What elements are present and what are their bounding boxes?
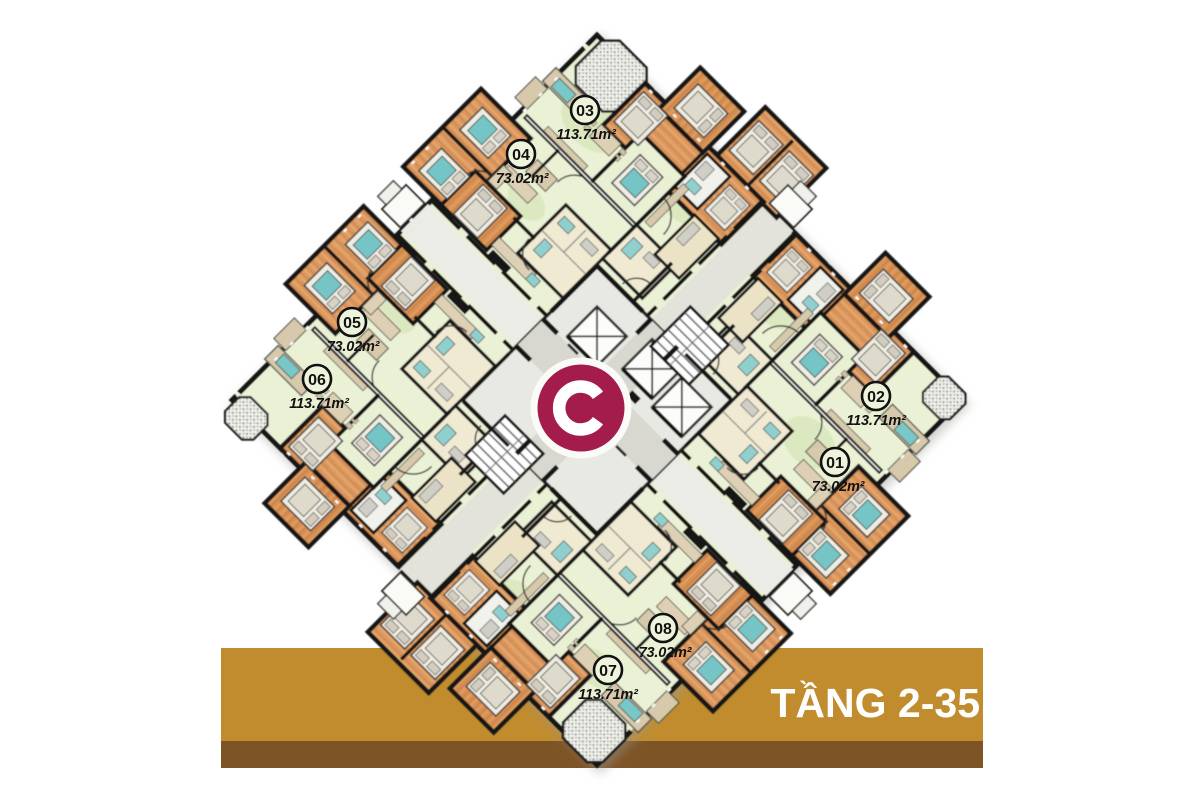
svg-text:03: 03 [576,103,594,120]
svg-text:73.02m²: 73.02m² [639,645,693,661]
svg-text:08: 08 [654,621,672,638]
svg-text:06: 06 [308,372,326,389]
svg-text:07: 07 [599,663,617,680]
svg-text:113.71m²: 113.71m² [289,396,350,412]
svg-text:04: 04 [512,147,530,164]
svg-text:05: 05 [343,315,361,332]
svg-text:113.71m²: 113.71m² [846,413,907,429]
svg-text:73.02m²: 73.02m² [812,479,866,495]
svg-text:73.02m²: 73.02m² [496,171,550,187]
svg-text:113.71m²: 113.71m² [556,127,617,143]
svg-text:TẦNG 2-35: TẦNG 2-35 [770,680,980,726]
svg-text:01: 01 [826,455,844,472]
svg-text:73.02m²: 73.02m² [327,339,381,355]
svg-text:113.71m²: 113.71m² [578,687,639,703]
svg-text:02: 02 [867,389,885,406]
